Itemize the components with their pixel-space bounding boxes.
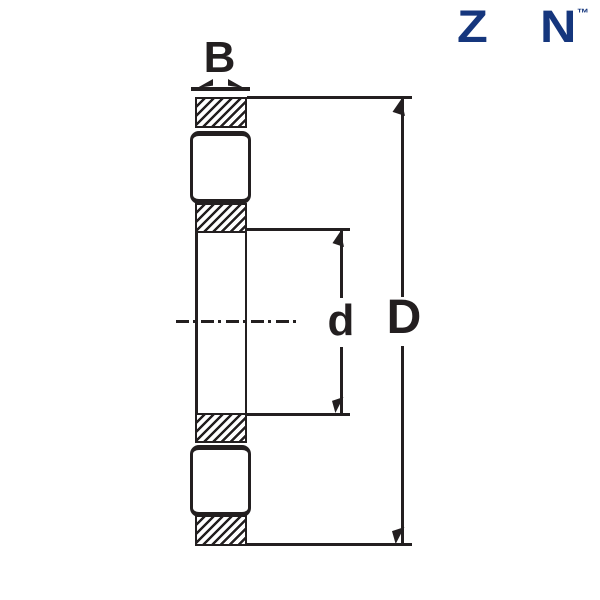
logo-letter-n: N xyxy=(540,10,575,44)
bearing-technical-drawing: Z N ™ B d D xyxy=(0,0,600,600)
D-extension-line-bottom xyxy=(247,543,412,546)
zen-logo: Z N ™ xyxy=(455,6,595,50)
axis-centerline xyxy=(176,320,300,323)
dimension-label-D: D xyxy=(385,298,423,338)
dimension-label-B: B xyxy=(197,38,242,78)
D-extension-line-top xyxy=(247,96,412,99)
outer-ring-top-section xyxy=(195,97,247,128)
inner-ring-bottom-section xyxy=(195,413,247,443)
b-dimension-line xyxy=(191,87,250,91)
d-extension-line-top xyxy=(247,228,350,231)
roller-top xyxy=(190,131,251,204)
outer-ring-bottom-section xyxy=(195,515,247,546)
D-dimension-line-upper xyxy=(401,97,404,297)
inner-ring-top-section xyxy=(195,203,247,233)
roller-bottom xyxy=(190,445,251,517)
D-dimension-line-lower xyxy=(401,346,404,545)
d-extension-line-bottom xyxy=(247,413,350,416)
bore-sleeve-right-line xyxy=(245,232,248,415)
trademark-symbol: ™ xyxy=(577,7,589,19)
logo-letter-z: Z xyxy=(457,10,487,44)
d-dimension-line-lower xyxy=(340,347,343,414)
bore-sleeve-left-line xyxy=(195,232,198,415)
dimension-label-d: d xyxy=(322,301,360,341)
